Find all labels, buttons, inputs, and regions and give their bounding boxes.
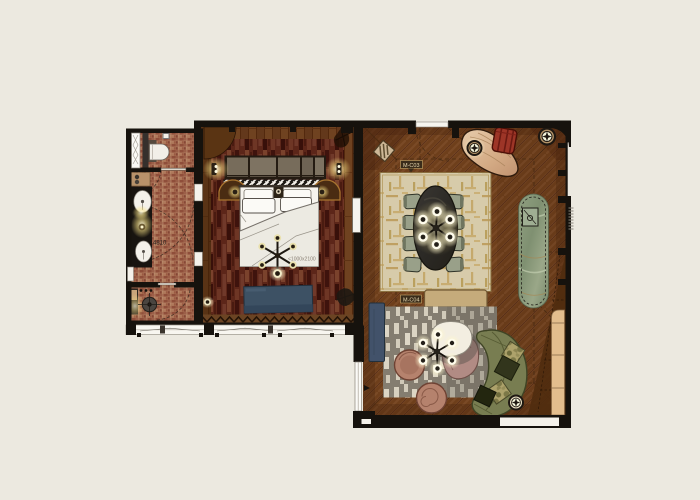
svg-text:4810: 4810 (153, 241, 167, 247)
svg-text:M-C04: M-C04 (403, 298, 420, 304)
svg-text:˂1000x2100: ˂1000x2100 (288, 257, 316, 263)
svg-text:M-C03: M-C03 (403, 163, 420, 169)
